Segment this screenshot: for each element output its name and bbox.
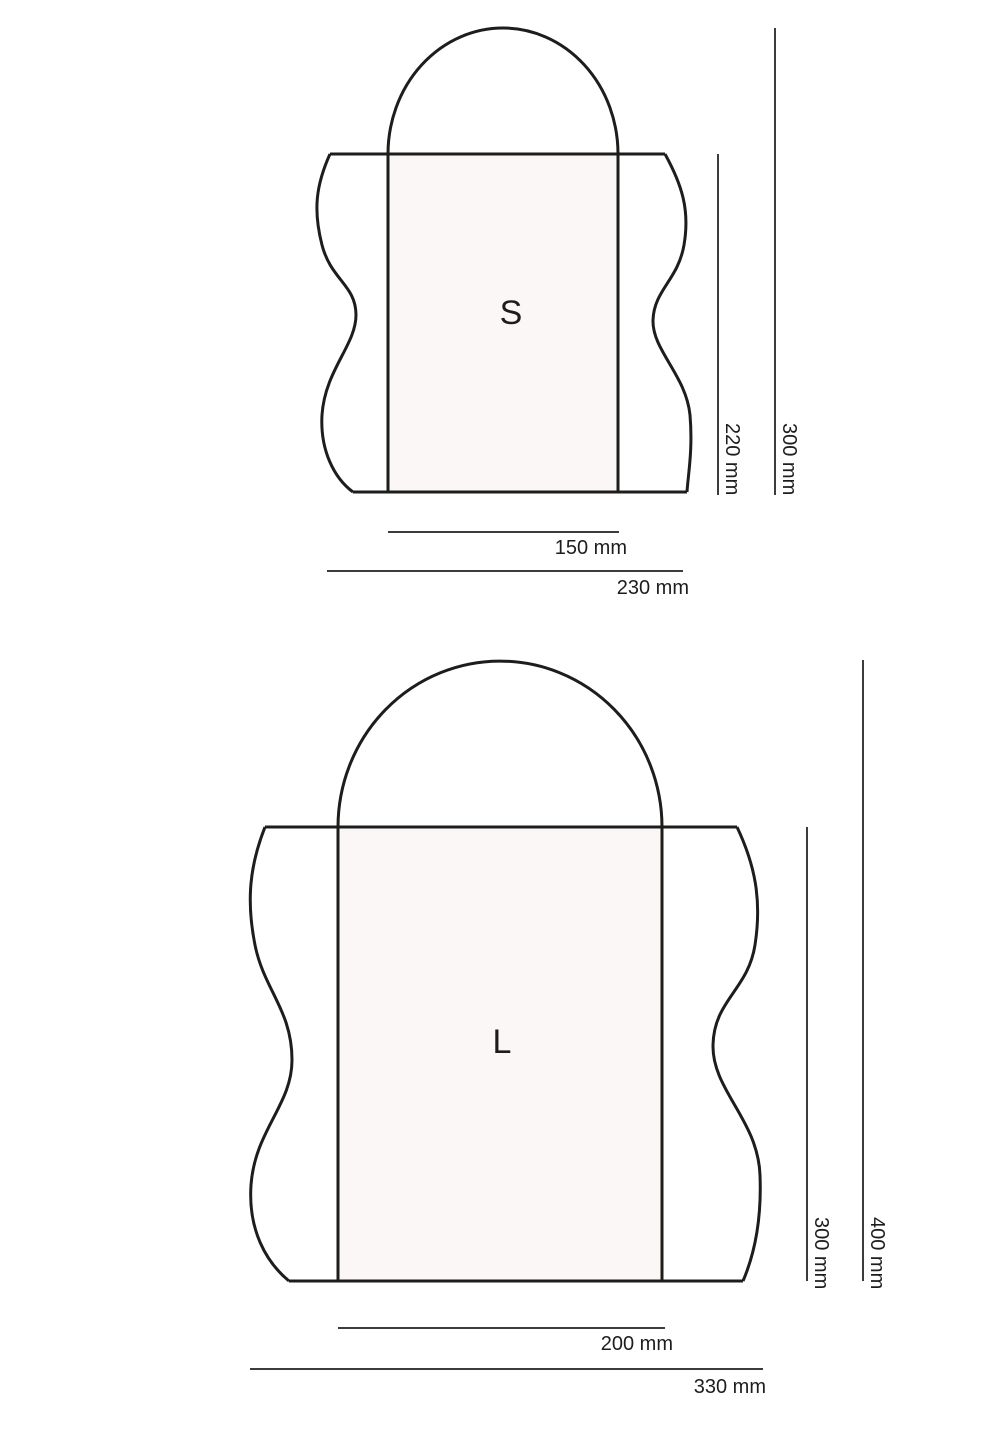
figure-large-bag	[250, 660, 863, 1369]
bag-l-fabric-left-wavy-edge	[250, 827, 292, 1281]
size-guide-diagram: S 220 mm 300 mm 150 mm 230 mm L 300 mm 4…	[0, 0, 1000, 1433]
dim-label-l-bag-width: 200 mm	[601, 1334, 673, 1354]
bag-l-fabric-right-wavy-edge	[713, 827, 760, 1281]
dim-label-s-total-height: 300 mm	[779, 423, 799, 495]
figure-small-bag	[317, 28, 775, 571]
bag-s-fabric-left-wavy-edge	[317, 154, 356, 492]
bag-size-diagram-svg	[0, 0, 1000, 1433]
dim-label-l-fabric-width: 330 mm	[694, 1377, 766, 1397]
bag-l-handle-arc	[338, 661, 662, 827]
dim-label-s-fabric-width: 230 mm	[617, 578, 689, 598]
dim-label-l-bag-height: 300 mm	[811, 1217, 831, 1289]
bag-l-size-label: L	[493, 1025, 512, 1059]
dim-label-s-bag-height: 220 mm	[722, 423, 742, 495]
bag-s-handle-arc	[388, 28, 618, 154]
dim-label-s-bag-width: 150 mm	[555, 538, 627, 558]
bag-s-fabric-right-wavy-edge	[653, 154, 691, 492]
bag-s-size-label: S	[500, 296, 523, 330]
dim-label-l-total-height: 400 mm	[867, 1217, 887, 1289]
